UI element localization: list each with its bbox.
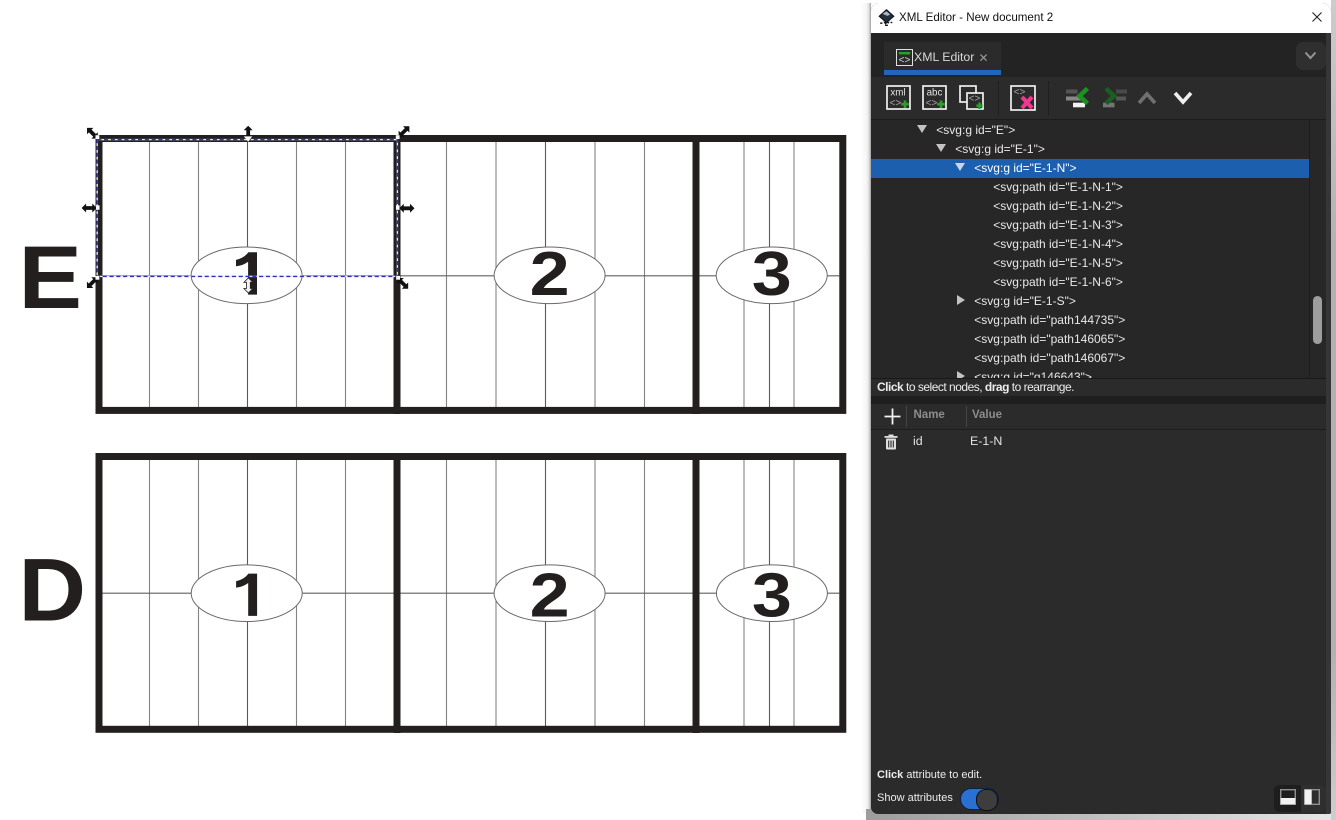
svg-text:2: 2: [530, 561, 570, 630]
svg-text:3: 3: [752, 561, 792, 630]
svg-text:abc: abc: [927, 88, 943, 99]
svg-text:<>: <>: [898, 54, 910, 65]
svg-text:<>: <>: [926, 98, 938, 109]
svg-text:E: E: [19, 227, 83, 327]
svg-text:D: D: [19, 539, 87, 639]
svg-text:<>: <>: [889, 98, 901, 109]
svg-text:2: 2: [530, 240, 570, 309]
svg-text:xml: xml: [890, 88, 905, 99]
svg-text:3: 3: [752, 240, 792, 309]
